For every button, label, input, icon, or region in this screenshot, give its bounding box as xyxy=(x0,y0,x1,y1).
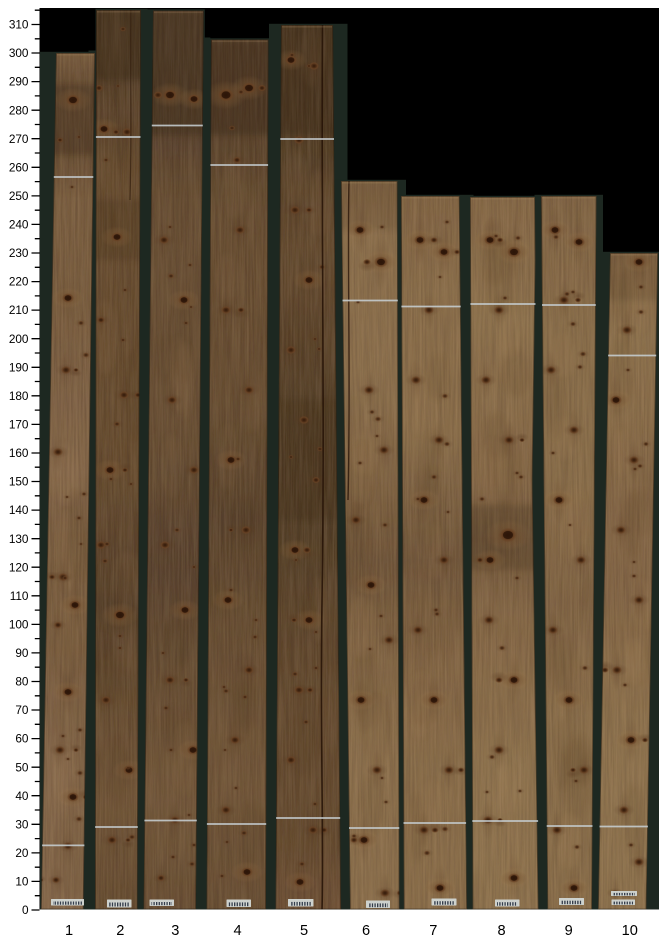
svg-text:250: 250 xyxy=(9,189,29,203)
svg-text:10: 10 xyxy=(15,875,29,889)
svg-text:150: 150 xyxy=(9,475,29,489)
svg-text:310: 310 xyxy=(9,18,29,32)
svg-text:90: 90 xyxy=(15,646,29,660)
svg-text:20: 20 xyxy=(15,846,29,860)
svg-text:240: 240 xyxy=(9,218,29,232)
svg-text:8: 8 xyxy=(497,923,505,939)
svg-text:260: 260 xyxy=(9,160,29,174)
svg-text:140: 140 xyxy=(9,503,29,517)
svg-text:100: 100 xyxy=(9,618,29,632)
svg-text:290: 290 xyxy=(9,75,29,89)
svg-text:9: 9 xyxy=(565,923,573,939)
svg-text:270: 270 xyxy=(9,132,29,146)
svg-text:10: 10 xyxy=(622,923,638,939)
svg-text:170: 170 xyxy=(9,418,29,432)
svg-text:300: 300 xyxy=(9,46,29,60)
svg-text:2: 2 xyxy=(116,923,124,939)
svg-text:60: 60 xyxy=(15,732,29,746)
svg-text:110: 110 xyxy=(10,589,29,603)
svg-text:160: 160 xyxy=(9,446,29,460)
svg-text:30: 30 xyxy=(15,817,29,831)
svg-text:200: 200 xyxy=(9,332,29,346)
svg-text:7: 7 xyxy=(429,923,437,939)
svg-text:4: 4 xyxy=(233,923,241,939)
svg-text:130: 130 xyxy=(9,532,29,546)
svg-text:220: 220 xyxy=(9,275,29,289)
svg-text:120: 120 xyxy=(9,560,29,574)
svg-text:210: 210 xyxy=(9,303,29,317)
svg-text:6: 6 xyxy=(362,923,370,939)
svg-text:70: 70 xyxy=(15,703,29,717)
svg-text:180: 180 xyxy=(9,389,29,403)
svg-text:80: 80 xyxy=(15,675,29,689)
svg-text:0: 0 xyxy=(22,903,29,917)
svg-text:280: 280 xyxy=(9,103,29,117)
svg-text:190: 190 xyxy=(9,360,29,374)
svg-text:1: 1 xyxy=(65,923,73,939)
svg-text:230: 230 xyxy=(9,246,29,260)
svg-text:50: 50 xyxy=(15,760,29,774)
svg-text:3: 3 xyxy=(171,923,179,939)
svg-text:5: 5 xyxy=(300,923,308,939)
svg-text:40: 40 xyxy=(15,789,29,803)
